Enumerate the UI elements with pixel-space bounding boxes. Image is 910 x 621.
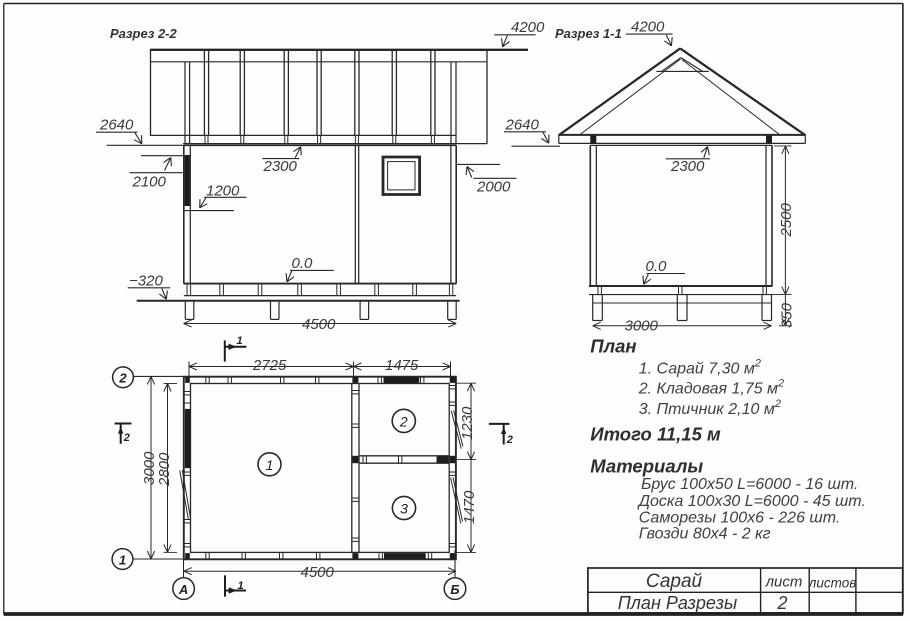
svg-text:2: 2 (399, 413, 408, 429)
svg-text:4500: 4500 (301, 564, 335, 581)
svg-text:Итого 11,15 м: Итого 11,15 м (590, 424, 721, 445)
svg-text:Материалы: Материалы (590, 456, 703, 477)
svg-text:2: 2 (123, 432, 130, 444)
svg-text:1: 1 (237, 335, 243, 347)
svg-text:4500: 4500 (302, 316, 336, 333)
svg-text:2300: 2300 (263, 158, 298, 175)
svg-text:Гвозди 80х4 - 2 кг: Гвозди 80х4 - 2 кг (639, 526, 771, 543)
svg-text:1: 1 (238, 580, 244, 592)
svg-text:2640: 2640 (505, 116, 540, 133)
svg-text:1470: 1470 (461, 490, 478, 524)
svg-text:1200: 1200 (206, 182, 240, 199)
svg-text:1: 1 (266, 457, 274, 473)
svg-text:4200: 4200 (511, 19, 545, 36)
svg-text:А: А (178, 582, 188, 597)
svg-text:Б: Б (450, 582, 459, 597)
svg-text:3. Птичник 2,10 м2: 3. Птичник 2,10 м2 (639, 398, 781, 418)
svg-text:1: 1 (119, 553, 126, 568)
svg-text:4200: 4200 (631, 19, 665, 36)
svg-text:3000: 3000 (625, 318, 659, 335)
svg-text:2: 2 (776, 593, 787, 613)
svg-text:План Разрезы: План Разрезы (618, 593, 738, 613)
svg-text:−320: −320 (129, 273, 163, 290)
svg-text:2800: 2800 (156, 452, 173, 487)
svg-text:Саморезы 100х6 - 226 шт.: Саморезы 100х6 - 226 шт. (639, 510, 841, 527)
svg-text:1475: 1475 (385, 357, 419, 374)
svg-text:2100: 2100 (132, 174, 167, 191)
svg-text:0.0: 0.0 (646, 258, 668, 275)
svg-text:2640: 2640 (99, 117, 134, 134)
svg-text:2500: 2500 (778, 202, 795, 237)
svg-text:2300: 2300 (670, 158, 705, 175)
svg-text:Разрез 2-2: Разрез 2-2 (110, 26, 178, 41)
svg-text:План: План (590, 336, 636, 357)
svg-text:350: 350 (779, 302, 796, 328)
svg-text:0.0: 0.0 (292, 255, 314, 272)
svg-text:2725: 2725 (252, 357, 287, 374)
svg-text:2. Кладовая 1,75 м2: 2. Кладовая 1,75 м2 (638, 378, 784, 398)
svg-text:2000: 2000 (476, 179, 511, 196)
svg-text:Разрез 1-1: Разрез 1-1 (555, 26, 622, 41)
svg-text:Сарай: Сарай (646, 571, 703, 592)
svg-text:листов: листов (808, 576, 857, 591)
svg-text:2: 2 (506, 434, 513, 446)
svg-text:лист: лист (765, 574, 803, 591)
svg-text:1230: 1230 (459, 406, 476, 440)
svg-text:3: 3 (400, 500, 408, 516)
svg-text:1. Сарай 7,30 м2: 1. Сарай 7,30 м2 (639, 358, 761, 378)
svg-text:2: 2 (118, 371, 127, 386)
svg-text:Брус 100х50 L=6000 - 16 шт.: Брус 100х50 L=6000 - 16 шт. (641, 476, 858, 493)
svg-text:Доска 100х30 L=6000 - 45 шт.: Доска 100х30 L=6000 - 45 шт. (637, 493, 866, 510)
